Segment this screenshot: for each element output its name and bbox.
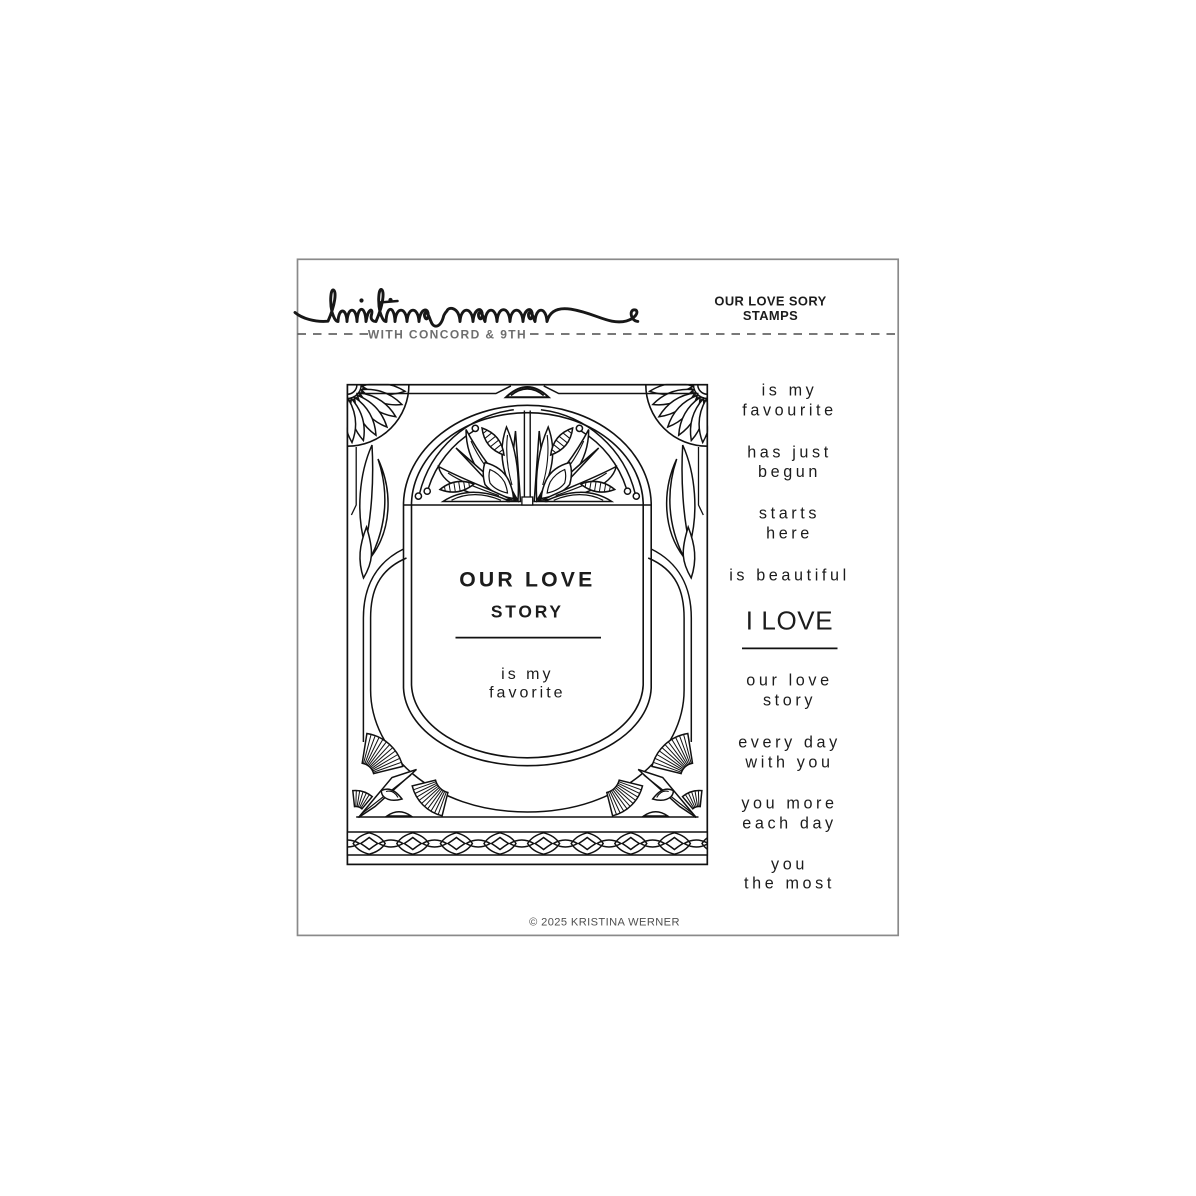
svg-text:our love: our love xyxy=(746,672,832,690)
svg-text:© 2025 KRISTINA WERNER: © 2025 KRISTINA WERNER xyxy=(529,917,680,929)
svg-text:you: you xyxy=(771,856,808,874)
svg-text:OUR LOVE: OUR LOVE xyxy=(459,568,595,591)
svg-text:the most: the most xyxy=(744,875,835,893)
svg-text:STORY: STORY xyxy=(491,602,564,622)
svg-text:WITH CONCORD & 9TH: WITH CONCORD & 9TH xyxy=(368,327,527,341)
svg-text:every day: every day xyxy=(738,734,841,752)
svg-text:begun: begun xyxy=(758,463,821,481)
svg-text:STAMPS: STAMPS xyxy=(743,308,798,323)
svg-text:OUR LOVE SORY: OUR LOVE SORY xyxy=(714,294,826,309)
svg-text:is my: is my xyxy=(501,666,553,683)
svg-text:has just: has just xyxy=(747,444,832,462)
svg-text:starts: starts xyxy=(759,505,820,523)
svg-text:favorite: favorite xyxy=(489,685,565,702)
svg-text:I LOVE: I LOVE xyxy=(746,606,833,636)
svg-text:is beautiful: is beautiful xyxy=(729,567,850,585)
svg-text:you more: you more xyxy=(741,795,837,813)
svg-text:story: story xyxy=(763,692,816,710)
svg-text:each day: each day xyxy=(742,815,837,833)
svg-text:with you: with you xyxy=(744,754,833,772)
svg-text:is my: is my xyxy=(762,382,818,400)
svg-text:here: here xyxy=(766,525,813,543)
svg-text:favourite: favourite xyxy=(742,402,837,420)
